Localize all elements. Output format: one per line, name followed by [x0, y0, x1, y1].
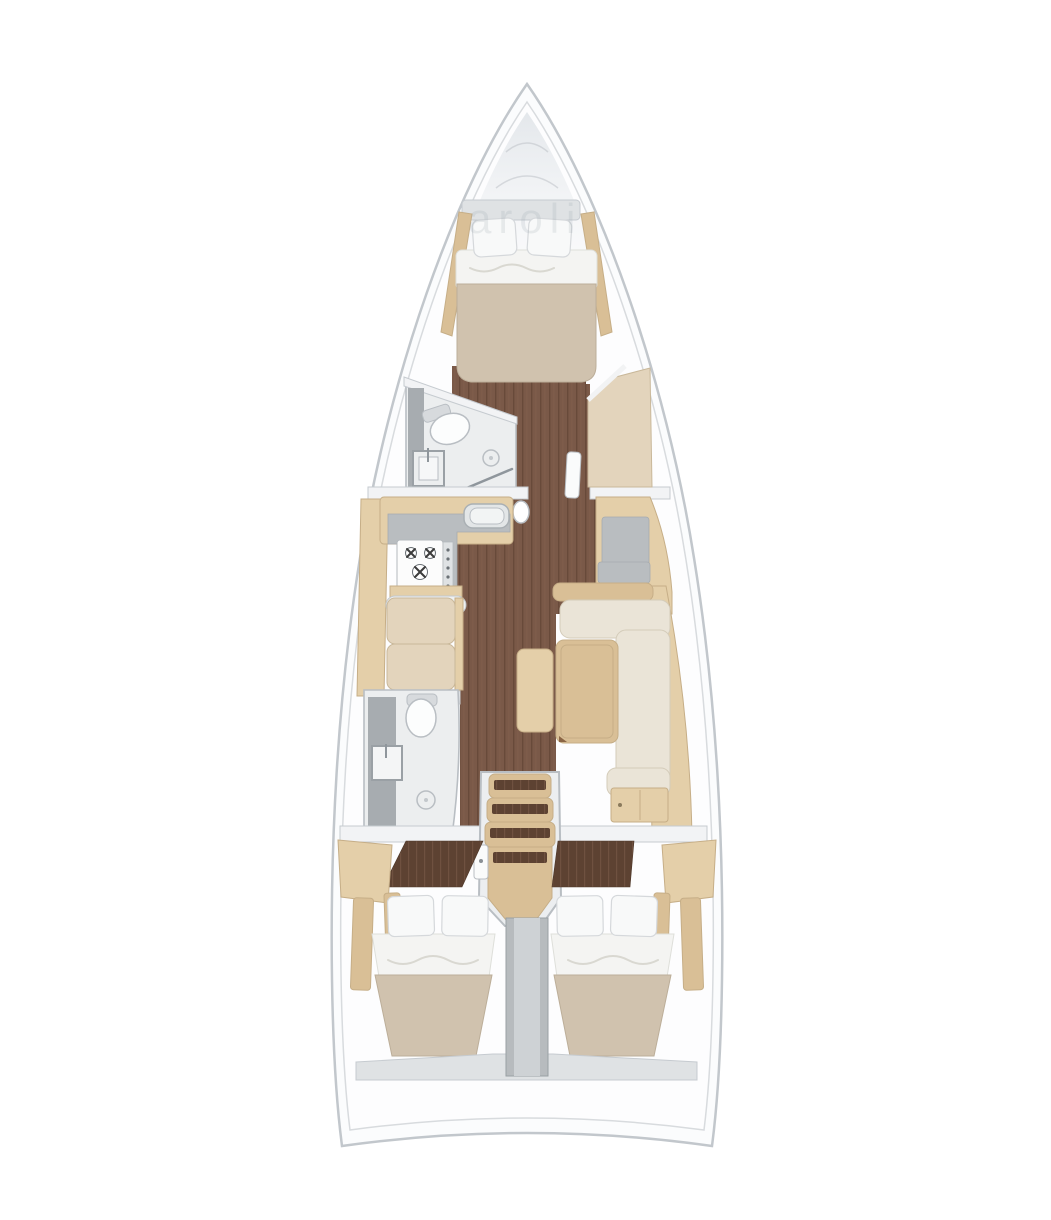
starboard-mattress: [554, 975, 671, 1056]
cockpit-bench-starboard: [557, 826, 707, 842]
starboard-pillow-left: [557, 896, 604, 937]
cabin-door-knob: [513, 501, 529, 523]
port-pillow-left: [387, 895, 434, 937]
aft-head: [364, 690, 459, 836]
settee-cushion-forward: [387, 598, 455, 644]
salon-back-pad: [598, 562, 650, 583]
starboard-wardrobe: [662, 840, 716, 903]
salon-cabinet: [611, 788, 668, 822]
center-divider-top: [514, 918, 540, 1076]
watermark-text: aroli: [468, 195, 582, 242]
port-hull-plank: [350, 898, 373, 991]
floor-plan-canvas: aroli: [0, 0, 1051, 1220]
boat-floor-plan: aroli: [0, 0, 1051, 1220]
starboard-hull-plank: [680, 898, 703, 991]
burner-small-right: [425, 548, 436, 559]
salon-stool: [517, 649, 553, 732]
settee-cushion-aft: [387, 644, 455, 690]
sofa-seat-cushion: [616, 630, 670, 782]
port-wardrobe: [338, 840, 392, 903]
salon-table: [556, 640, 618, 743]
port-mattress: [375, 975, 492, 1056]
sofa-armrest: [553, 583, 653, 601]
vberth-mattress: [457, 284, 596, 382]
sink: [413, 448, 444, 486]
starboard-pillow-right: [610, 895, 657, 937]
stove: [397, 540, 453, 590]
cockpit-bench-port: [340, 826, 490, 842]
open-cabin-door-leaf: [565, 452, 581, 499]
starboard-cabin-headboard: [552, 841, 634, 887]
companionway: [479, 772, 561, 926]
port-pillow-right: [442, 896, 489, 937]
burner-small-left: [406, 548, 417, 559]
settee-side-trim: [455, 598, 463, 690]
burner-large: [413, 565, 428, 580]
toilet: [406, 694, 437, 737]
galley-sink: [464, 504, 509, 528]
companionway-steps: [485, 774, 555, 920]
engine-divider: [506, 918, 548, 1076]
sink: [372, 744, 402, 780]
